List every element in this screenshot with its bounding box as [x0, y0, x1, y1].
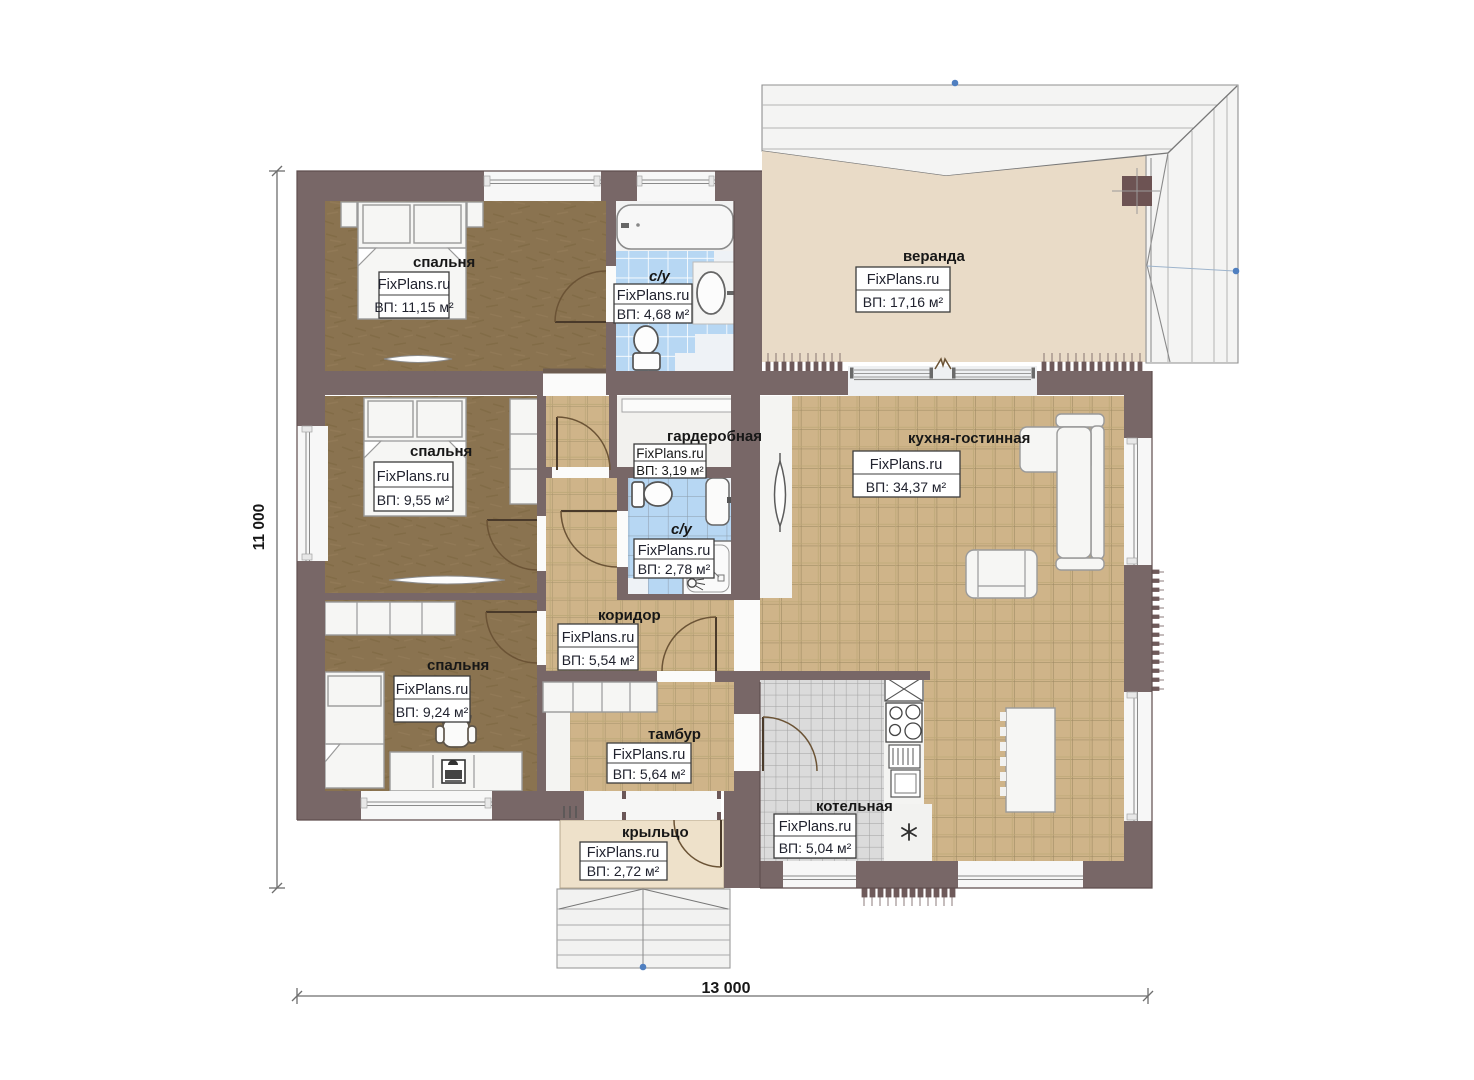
svg-text:кухня-гостинная: кухня-гостинная [908, 430, 1030, 447]
svg-text:гардеробная: гардеробная [667, 428, 762, 445]
svg-text:ВП: 9,24 м²: ВП: 9,24 м² [396, 704, 469, 720]
svg-text:веранда: веранда [903, 248, 965, 265]
svg-text:FixPlans.ru: FixPlans.ru [587, 845, 660, 861]
svg-text:ВП: 2,72 м²: ВП: 2,72 м² [587, 863, 660, 879]
svg-text:FixPlans.ru: FixPlans.ru [870, 457, 943, 473]
svg-text:11 000: 11 000 [251, 504, 268, 551]
svg-text:тамбур: тамбур [648, 726, 701, 743]
svg-text:FixPlans.ru: FixPlans.ru [377, 469, 450, 485]
svg-text:ВП: 9,55 м²: ВП: 9,55 м² [377, 492, 450, 508]
svg-text:FixPlans.ru: FixPlans.ru [378, 277, 451, 293]
svg-text:13 000: 13 000 [702, 980, 751, 997]
svg-text:ВП: 5,64 м²: ВП: 5,64 м² [613, 766, 686, 782]
svg-text:ВП: 17,16 м²: ВП: 17,16 м² [863, 294, 944, 310]
svg-text:котельная: котельная [816, 798, 893, 815]
svg-text:FixPlans.ru: FixPlans.ru [638, 543, 711, 559]
svg-text:спальня: спальня [410, 443, 472, 460]
svg-text:ВП: 11,15 м²: ВП: 11,15 м² [374, 299, 454, 315]
svg-text:FixPlans.ru: FixPlans.ru [617, 288, 690, 304]
svg-text:спальня: спальня [427, 657, 489, 674]
svg-text:ВП: 5,54 м²: ВП: 5,54 м² [562, 652, 635, 668]
svg-text:с/у: с/у [649, 268, 671, 285]
svg-text:ВП: 5,04 м²: ВП: 5,04 м² [779, 840, 852, 856]
svg-text:с/у: с/у [671, 521, 693, 538]
svg-text:FixPlans.ru: FixPlans.ru [562, 630, 635, 646]
svg-text:FixPlans.ru: FixPlans.ru [636, 446, 704, 461]
svg-text:FixPlans.ru: FixPlans.ru [867, 272, 940, 288]
svg-text:ВП: 34,37 м²: ВП: 34,37 м² [866, 479, 947, 495]
svg-text:коридор: коридор [598, 607, 661, 624]
svg-text:ВП: 2,78 м²: ВП: 2,78 м² [638, 561, 711, 577]
svg-text:ВП: 4,68 м²: ВП: 4,68 м² [617, 306, 690, 322]
svg-text:спальня: спальня [413, 254, 475, 271]
svg-text:FixPlans.ru: FixPlans.ru [779, 819, 852, 835]
svg-text:ВП: 3,19 м²: ВП: 3,19 м² [636, 463, 704, 478]
svg-text:крыльцо: крыльцо [622, 824, 689, 841]
svg-text:FixPlans.ru: FixPlans.ru [396, 682, 469, 698]
svg-text:FixPlans.ru: FixPlans.ru [613, 747, 686, 763]
